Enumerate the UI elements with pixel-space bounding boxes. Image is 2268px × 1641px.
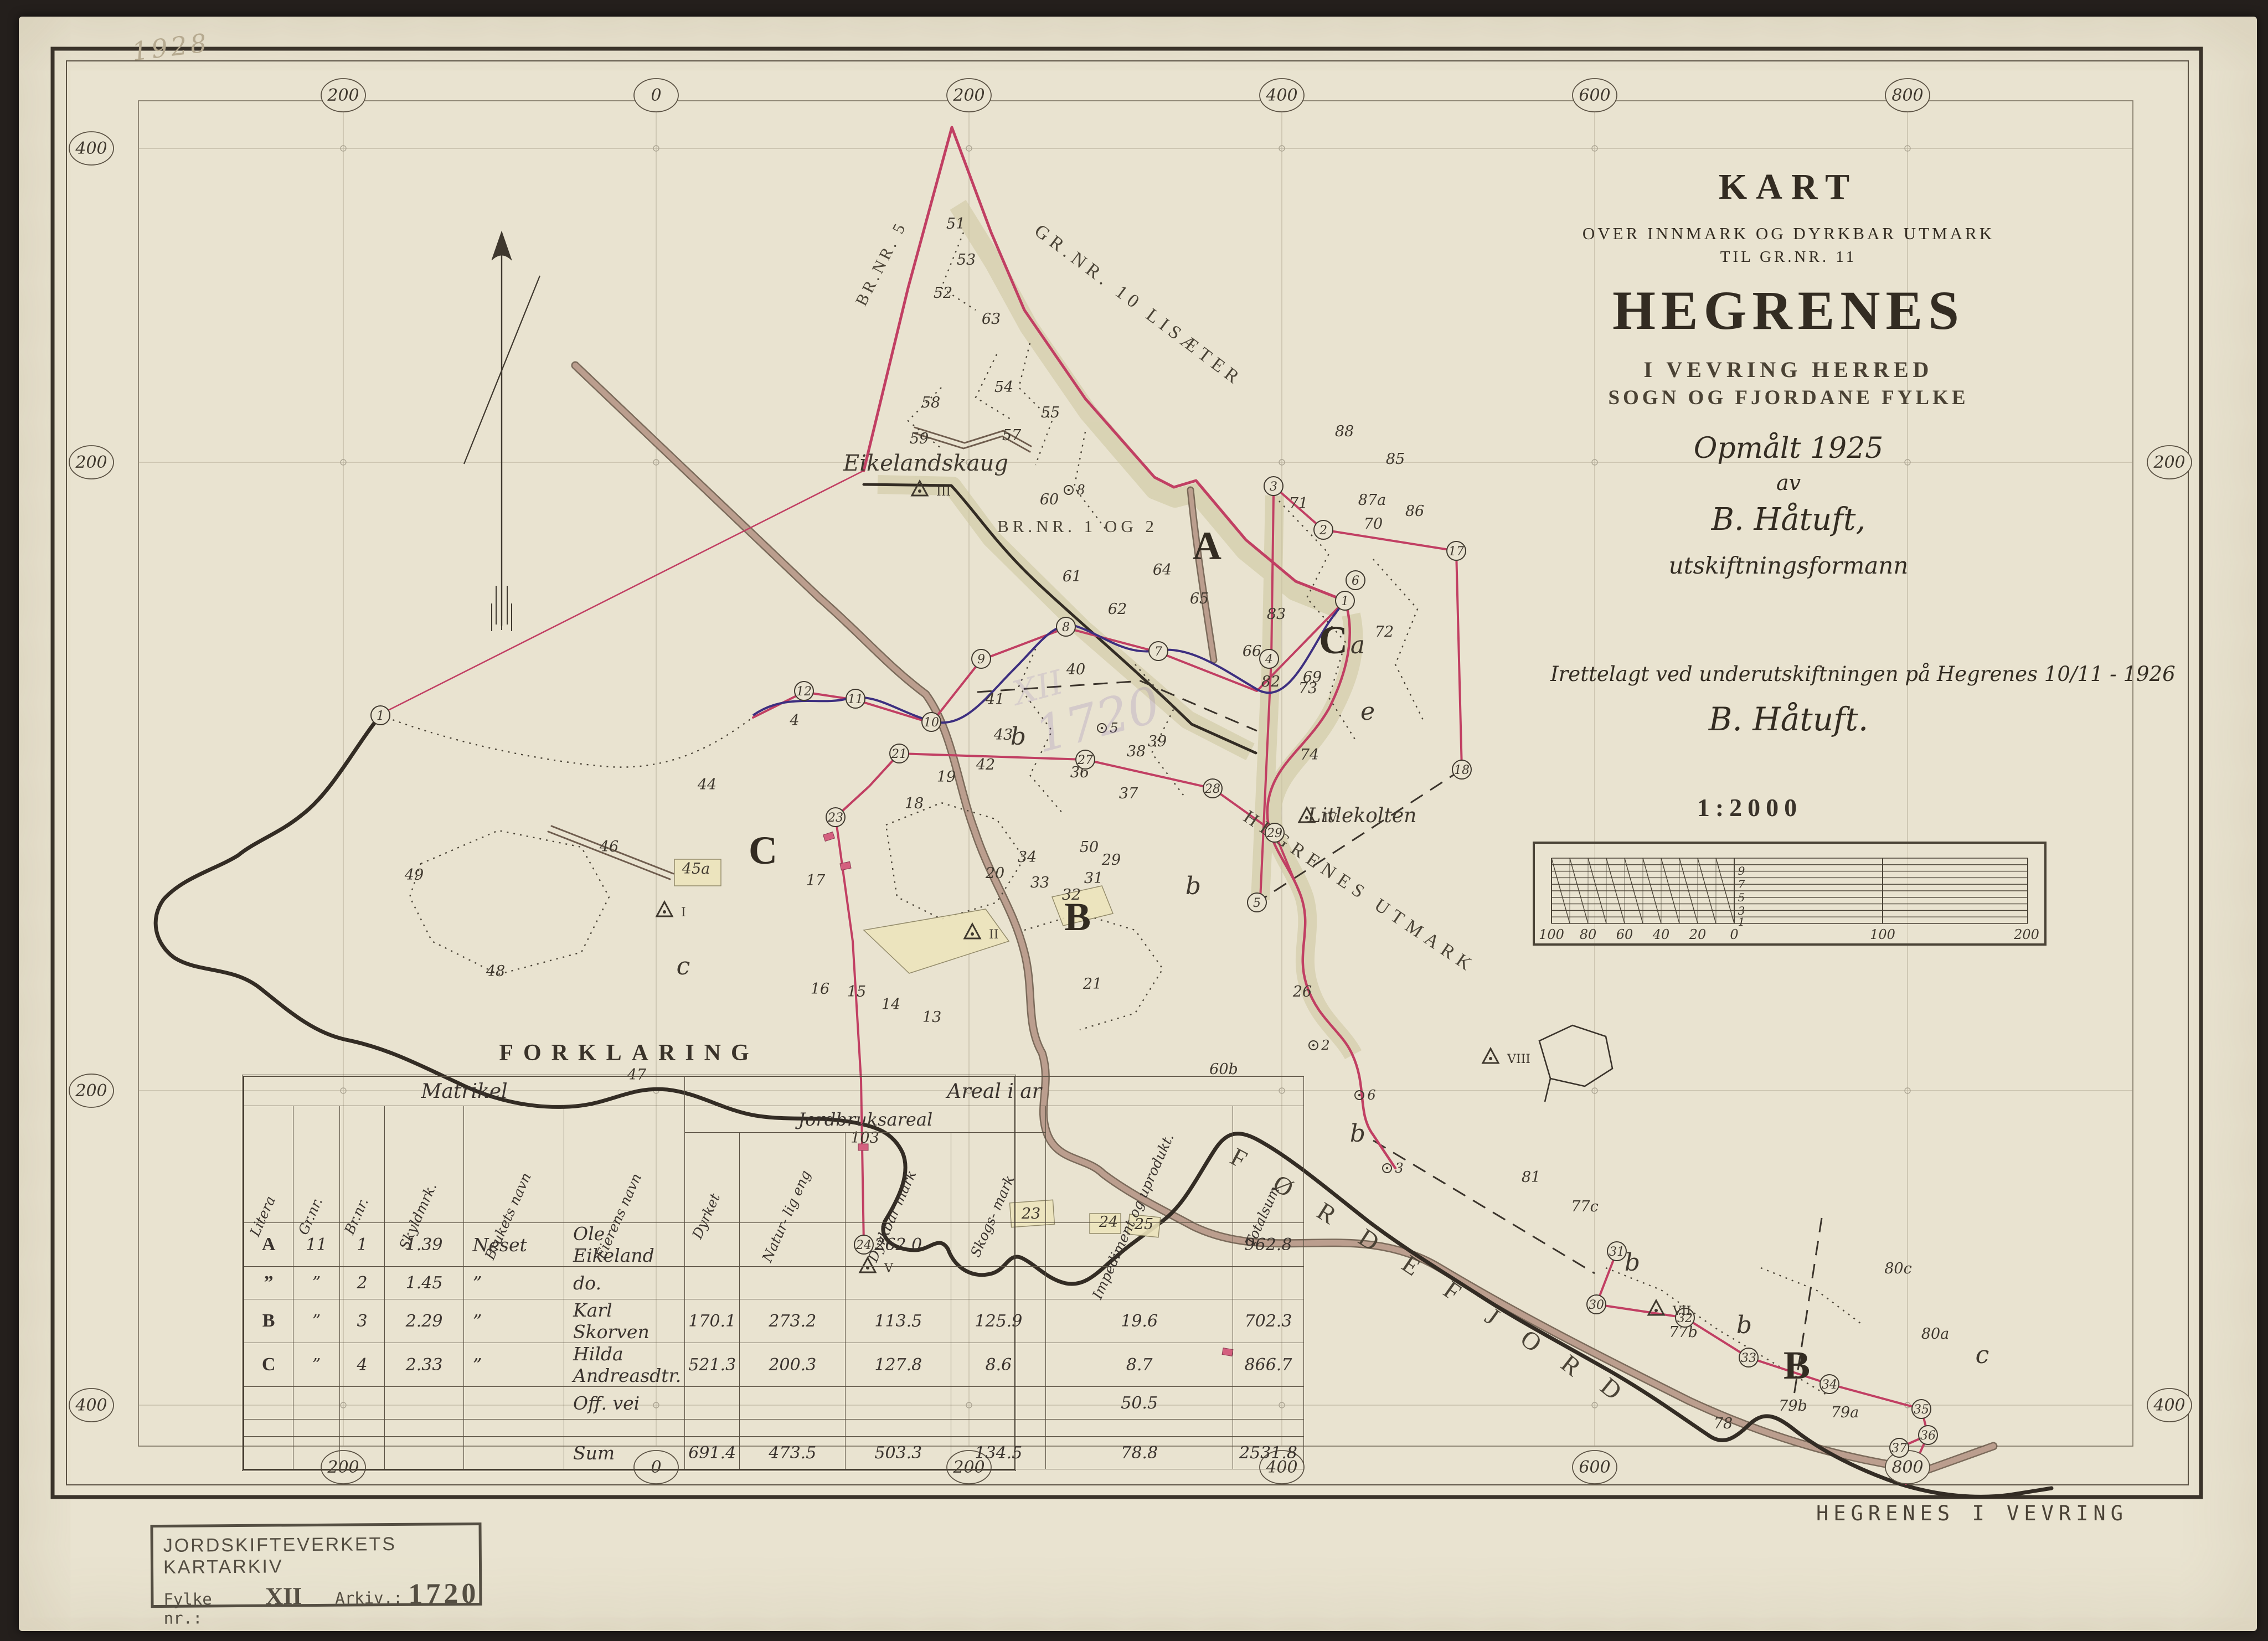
triangulation-numeral: III (936, 485, 951, 499)
subdivision-letter: b (1185, 872, 1201, 900)
parcel-number: 53 (957, 251, 976, 269)
fk-cell-78-8: 78.8 (1046, 1437, 1233, 1469)
fk-cell (685, 1267, 740, 1299)
fk-cell (740, 1387, 846, 1420)
boundary-point-number: 6 (1352, 574, 1359, 588)
title-kart: KART (1550, 166, 2027, 208)
boundary-point: 34 (1820, 1375, 1839, 1394)
parcel-number: 80c (1884, 1260, 1911, 1277)
triangulation-numeral: IV (1323, 812, 1338, 825)
fk-cell (244, 1387, 293, 1420)
parcel-number: 49 (404, 866, 424, 884)
boundary-point: 36 (1919, 1426, 1937, 1444)
subdivision-letter: c (677, 952, 690, 981)
grid-tick-value: 200 (75, 1081, 107, 1101)
boundary-point-number: 18 (1454, 763, 1470, 777)
point-mark-number: 6 (1367, 1087, 1375, 1103)
parcel-number: 71 (1289, 495, 1308, 512)
fk-cell-sum: Sum (564, 1437, 685, 1469)
boundary-point: 30 (1587, 1295, 1606, 1314)
fk-cell (951, 1223, 1046, 1267)
surveyor-title: utskiftningsformann (1550, 552, 2027, 579)
parcel-number: 85 (1386, 451, 1405, 468)
fk-cell-19-6: 19.6 (1046, 1299, 1233, 1343)
triangulation-numeral: II (989, 928, 998, 942)
fk-cell-brukets-navn: Brukets navn (463, 1106, 564, 1223)
fk-cell-113-5: 113.5 (846, 1299, 951, 1343)
fk-cell-503-3: 503.3 (846, 1437, 951, 1469)
parcel-number: 29 (1101, 852, 1121, 869)
fk-cell (385, 1420, 463, 1437)
parcel-number: 42 (976, 756, 995, 773)
boundary-point: 31 (1607, 1242, 1626, 1261)
parcel-number: 37 (1119, 785, 1138, 802)
parcel-number: 58 (921, 394, 940, 411)
boundary-point-number: 30 (1589, 1298, 1604, 1312)
stamp-line1: JORDSKIFTEVERKETS KARTARKIV (163, 1533, 480, 1578)
map-label: BR.NR. 1 OG 2 (997, 517, 1158, 536)
parcel-number: 55 (1041, 404, 1060, 421)
parcel-number: 17 (806, 872, 826, 889)
fk-cell (1046, 1267, 1233, 1299)
parcel-number: 63 (982, 311, 1001, 328)
fk-cell (1233, 1387, 1303, 1420)
scale-tick-label: 20 (1689, 927, 1707, 942)
boundary-point: 5 (1248, 893, 1266, 912)
parcel-number: 83 (1267, 606, 1286, 623)
boundary-point-number: 9 (977, 653, 985, 667)
parcel-number: 82 (1261, 673, 1280, 690)
fk-cell (339, 1420, 385, 1437)
subdivision-letter: b (1736, 1311, 1752, 1339)
fk-cell (951, 1420, 1046, 1437)
boundary-point: 33 (1739, 1348, 1758, 1367)
fk-cell-1-45: 1.45 (385, 1267, 463, 1299)
fk-cell--: ” (244, 1267, 293, 1299)
parcel-number: 14 (882, 996, 900, 1013)
fk-cell (564, 1420, 685, 1437)
fk-cell-hilda-andreasdtr-: Hilda Andreasdtr. (564, 1343, 685, 1387)
grid-tick-label: 200 (69, 1074, 114, 1107)
grid-tick-value: 800 (1891, 1458, 1923, 1477)
fk-cell-3: 3 (339, 1299, 385, 1343)
point-mark: 6 (1355, 1087, 1376, 1103)
parcel-number: 21 (1083, 976, 1102, 993)
boundary-point-number: 34 (1822, 1378, 1837, 1392)
boundary-point-number: 31 (1609, 1245, 1625, 1259)
boundary-point-number: 28 (1204, 782, 1220, 796)
fk-cell-170-1: 170.1 (685, 1299, 740, 1343)
boundary-point-number: 4 (1265, 653, 1273, 667)
fk-cell-impediment-og-uprodukt-: Impediment og uprodukt. (1046, 1106, 1233, 1223)
region-letter: C (749, 828, 777, 873)
fk-cell--: ” (463, 1343, 564, 1387)
boundary-point: 1 (1336, 591, 1354, 610)
fk-cell-262-0: 262.0 (846, 1223, 951, 1267)
subdivision-letter: a (1351, 631, 1365, 659)
fk-cell-2-33: 2.33 (385, 1343, 463, 1387)
parcel-number: 19 (937, 768, 956, 786)
grid-tick-value: 200 (75, 453, 107, 472)
title-block: KART OVER INNMARK OG DYRKBAR UTMARK TIL … (1550, 166, 2027, 738)
fk-cell-200-3: 200.3 (740, 1343, 846, 1387)
boundary-point-number: 5 (1253, 896, 1261, 910)
grid-tick-value: 200 (327, 86, 359, 105)
parcel-number: 77c (1571, 1198, 1598, 1215)
boundary-point: 18 (1452, 760, 1471, 779)
fk-cell-521-3: 521.3 (685, 1343, 740, 1387)
parcel-number: 59 (910, 430, 929, 447)
scale-side-label: 5 (1738, 891, 1745, 904)
point-mark-number: 3 (1395, 1160, 1403, 1176)
parcel-number: 31 (1084, 870, 1103, 887)
scale-tick-label: 40 (1652, 927, 1670, 942)
boundary-point: 8 (1056, 617, 1075, 636)
grid-tick-label: 600 (1573, 1451, 1617, 1484)
boundary-point-number: 27 (1077, 754, 1093, 767)
fk-cell-karl-skorven: Karl Skorven (564, 1299, 685, 1343)
grid-tick-value: 400 (75, 139, 107, 158)
fk-cell--: ” (463, 1267, 564, 1299)
fk-cell (463, 1387, 564, 1420)
parcel-number: 38 (1127, 743, 1146, 760)
boundary-point-number: 12 (796, 685, 812, 699)
fk-cell-c: C (244, 1343, 293, 1387)
scale-side-label: 9 (1738, 864, 1745, 878)
parcel-number: 52 (934, 285, 952, 302)
boundary-point: 1 (371, 706, 390, 725)
boundary-point: 3 (1264, 477, 1283, 496)
boundary-point-number: 8 (1062, 621, 1070, 634)
fk-cell (293, 1437, 339, 1469)
boundary-point-number: 7 (1154, 645, 1162, 659)
forklaring-table: MatrikelAreal i arLiteraGr.nr.Br.nr.Skyl… (244, 1076, 1014, 1469)
place-name: Eikelandskaug (843, 451, 1008, 476)
boundary-point: 28 (1203, 779, 1222, 798)
fk-cell-4: 4 (339, 1343, 385, 1387)
parcel-number: 86 (1405, 503, 1424, 520)
fk-cell-gr-nr-: Gr.nr. (293, 1106, 339, 1223)
grid-tick-label: 400 (2147, 1389, 2192, 1422)
scale-tick-label: 80 (1580, 927, 1597, 942)
triangulation-point: I (657, 902, 686, 920)
grid-tick-value: 600 (1579, 86, 1610, 105)
fk-cell-dyrket: Dyrket (685, 1133, 740, 1223)
fk-cell (740, 1267, 846, 1299)
parcel-number: 74 (1300, 746, 1319, 763)
boxed-parcel-label: 45a (682, 860, 710, 878)
boundary-point: 35 (1912, 1400, 1931, 1418)
fk-cell (293, 1420, 339, 1437)
fk-cell-br-nr-: Br.nr. (339, 1106, 385, 1223)
parcel-number: 4 (789, 712, 799, 729)
scale-tick-label: 100 (1870, 927, 1895, 942)
scale-side-label: 7 (1738, 878, 1745, 891)
title-line3: I VEVRING HERRED (1550, 357, 2027, 383)
boundary-point: 37 (1890, 1438, 1909, 1457)
fk-cell (951, 1267, 1046, 1299)
region-letter: C (1319, 618, 1348, 662)
point-mark-number: 2 (1321, 1038, 1329, 1053)
title-line1: OVER INNMARK OG DYRKBAR UTMARK (1550, 224, 2027, 244)
fk-cell-2: 2 (339, 1267, 385, 1299)
title-av: av (1550, 471, 2027, 495)
fk-cell-691-4: 691.4 (685, 1437, 740, 1469)
fk-cell-jordbruksareal: Jordbruksareal (685, 1106, 1046, 1133)
parcel-number: 32 (1062, 886, 1081, 904)
parcel-number: 61 (1063, 568, 1081, 585)
fk-cell-matrikel: Matrikel (244, 1077, 685, 1106)
boundary-point: 11 (846, 689, 865, 708)
grid-tick-label: 0 (634, 79, 678, 112)
boundary-point-number: 23 (827, 811, 843, 825)
boundary-point-number: 11 (848, 693, 863, 706)
fjord-letter: R (1312, 1196, 1342, 1230)
triangulation-numeral: I (681, 906, 686, 920)
fk-cell (339, 1387, 385, 1420)
boundary-point: 29 (1265, 823, 1284, 842)
point-mark-number: 8 (1076, 482, 1085, 498)
fk-cell-ole-eikeland: Ole Eikeland (564, 1223, 685, 1267)
fk-cell-litera: Litera (244, 1106, 293, 1223)
stamp-fylke-value: XII (265, 1582, 302, 1610)
fk-cell (463, 1420, 564, 1437)
parcel-number: 16 (811, 981, 829, 998)
grid-tick-value: 400 (2153, 1396, 2185, 1415)
grid-tick-label: 800 (1885, 1451, 1930, 1484)
subdivision-letter: b (1625, 1248, 1640, 1277)
parcel-number: 60 (1040, 491, 1059, 508)
grid-tick-label: 800 (1885, 79, 1930, 112)
parcel-number: 64 (1153, 561, 1172, 579)
fk-cell (685, 1387, 740, 1420)
grid-tick-label: 200 (69, 446, 114, 479)
grid-tick-label: 400 (1260, 79, 1304, 112)
parcel-number: 66 (1243, 643, 1261, 660)
fk-cell-b: B (244, 1299, 293, 1343)
fk-cell (293, 1387, 339, 1420)
parcel-number: 79a (1831, 1404, 1859, 1421)
grid-tick-value: 200 (2153, 453, 2185, 472)
parcel-number: 43 (993, 726, 1013, 744)
fk-cell-totalsum: Totalsum (1233, 1106, 1303, 1223)
parcel-number: 73 (1298, 680, 1317, 697)
scanned-map-sheet: 2000200400600800200020040060080040020020… (0, 0, 2268, 1641)
parcel-number: 78 (1714, 1415, 1733, 1432)
fk-cell (1233, 1420, 1303, 1437)
boundary-point: 21 (890, 744, 909, 763)
fk-cell-50-5: 50.5 (1046, 1387, 1233, 1420)
parcel-number: 20 (985, 865, 1004, 882)
grid-tick-value: 600 (1579, 1458, 1610, 1477)
parcel-number: 62 (1108, 601, 1127, 618)
grid-tick-value: 400 (1265, 86, 1297, 105)
fk-cell (244, 1437, 293, 1469)
boundary-point-number: 1 (377, 709, 384, 723)
parcel-number: 41 (985, 691, 1004, 708)
fk-cell--: ” (463, 1299, 564, 1343)
boundary-point: 6 (1346, 571, 1365, 590)
sheet-caption: HEGRENES I VEVRING (1816, 1501, 2128, 1525)
boundary-point: 10 (922, 713, 941, 731)
fk-cell-2531-8: 2531.8 (1233, 1437, 1303, 1469)
parcel-number: 65 (1190, 590, 1209, 607)
fk-cell-skyldmrk-: Skyldmrk. (385, 1106, 463, 1223)
fjord-letter: F (1439, 1275, 1466, 1306)
fk-cell (685, 1420, 740, 1437)
parcel-number: 48 (486, 963, 505, 980)
forklaring-title: FORKLARING (244, 1040, 1014, 1066)
boundary-point-number: 37 (1891, 1442, 1907, 1456)
subdivision-letter: b (1350, 1119, 1365, 1148)
grid-tick-value: 0 (651, 86, 661, 105)
parcel-number: 51 (946, 215, 965, 233)
subdivision-letter: e (1360, 698, 1375, 726)
scale-tick-label: 200 (2013, 927, 2039, 942)
fk-cell (1046, 1223, 1233, 1267)
parcel-number: 54 (994, 379, 1013, 396)
title-name: HEGRENES (1550, 278, 2027, 342)
fk-cell (846, 1267, 951, 1299)
fk-cell-do-: do. (564, 1267, 685, 1299)
boundary-point: 4 (1260, 649, 1279, 668)
grid-tick-label: 200 (2147, 446, 2192, 479)
fk-cell-134-5: 134.5 (951, 1437, 1046, 1469)
parcel-number: 60b (1209, 1061, 1238, 1078)
fk-cell-702-3: 702.3 (1233, 1299, 1303, 1343)
scale-tick-label: 0 (1730, 927, 1738, 942)
fk-cell (1233, 1267, 1303, 1299)
parcel-number: 50 (1080, 839, 1099, 856)
boundary-point: 23 (826, 808, 845, 827)
fk-cell-273-2: 273.2 (740, 1299, 846, 1343)
fk-cell-natur-lig-eng: Natur- lig eng (740, 1133, 846, 1223)
grid-tick-value: 800 (1891, 86, 1923, 105)
parcel-number: 72 (1375, 623, 1394, 641)
grid-tick-value: 200 (952, 86, 984, 105)
fk-cell--: ” (293, 1267, 339, 1299)
parcel-number: 79b (1779, 1397, 1807, 1415)
parcel-number: 26 (1292, 983, 1312, 1000)
fk-cell (1046, 1420, 1233, 1437)
parcel-number: 15 (847, 983, 866, 1000)
fk-cell-127-8: 127.8 (846, 1343, 951, 1387)
fk-cell-866-7: 866.7 (1233, 1343, 1303, 1387)
fk-cell-2-29: 2.29 (385, 1299, 463, 1343)
grid-tick-label: 200 (947, 79, 991, 112)
boundary-point-number: 35 (1914, 1403, 1929, 1417)
scale-bar (1534, 843, 2045, 945)
stamp-arkiv-label: Arkiv.: (335, 1588, 403, 1608)
triangulation-numeral: VII (1672, 1304, 1691, 1318)
parcel-number: 88 (1335, 423, 1354, 440)
fk-cell-off-vei: Off. vei (564, 1387, 685, 1420)
boundary-point: 17 (1447, 541, 1466, 560)
scale-side-label: 1 (1738, 915, 1745, 928)
map-label: BR.NR. 5 (852, 218, 910, 309)
fk-cell-473-5: 473.5 (740, 1437, 846, 1469)
fk-cell (740, 1420, 846, 1437)
fk-cell-125-9: 125.9 (951, 1299, 1046, 1343)
fk-cell (385, 1437, 463, 1469)
parcel-number: 40 (1066, 661, 1085, 678)
title-note: Irettelagt ved underutskiftningen på Heg… (1550, 662, 2027, 686)
fk-cell-neset: Neset (463, 1223, 564, 1267)
boundary-point-number: 1 (1341, 595, 1349, 608)
fk-cell (951, 1387, 1046, 1420)
parcel-number: 87a (1358, 492, 1386, 509)
scale-tick-label: 60 (1616, 927, 1633, 942)
grid-tick-label: 400 (69, 132, 114, 165)
fk-cell (385, 1387, 463, 1420)
parcel-number: 80a (1921, 1325, 1949, 1343)
fk-cell-962-8: 962.8 (1233, 1223, 1303, 1267)
subdivision-letter: c (1976, 1341, 1989, 1369)
parcel-number: 44 (697, 776, 717, 793)
title-surveyed: Opmålt 1925 (1550, 432, 2027, 465)
boundary-point: 12 (795, 682, 813, 700)
grid-tick-label: 200 (321, 79, 365, 112)
parcel-number: 70 (1364, 515, 1383, 533)
triangulation-point: VIII (1483, 1049, 1530, 1066)
title-line4: SOGN OG FJORDANE FYLKE (1550, 386, 2027, 410)
fk-cell-dyrkbar-mark: Dyrkbar mark (846, 1133, 951, 1223)
north-arrow-icon (464, 231, 540, 631)
fk-cell (463, 1437, 564, 1469)
fk-cell (740, 1223, 846, 1267)
boundary-point: 7 (1149, 642, 1168, 660)
boundary-point-number: 33 (1741, 1351, 1756, 1365)
fk-cell-8-7: 8.7 (1046, 1343, 1233, 1387)
parcel-number: 46 (599, 838, 618, 855)
fk-cell-8-6: 8.6 (951, 1343, 1046, 1387)
fk-cell--: ” (293, 1343, 339, 1387)
parcel-number: 81 (1522, 1169, 1540, 1186)
parcel-number: 13 (922, 1009, 941, 1026)
archive-stamp: JORDSKIFTEVERKETS KARTARKIV Fylke nr.: X… (150, 1523, 482, 1608)
fk-cell (339, 1437, 385, 1469)
grid-tick-value: 400 (75, 1396, 107, 1415)
fjord-letter: J (1480, 1302, 1504, 1331)
grid-tick-label: 600 (1573, 79, 1617, 112)
second-signature: B. Håtuft. (1550, 700, 2027, 738)
point-mark: 2 (1309, 1038, 1330, 1053)
stamp-arkiv-value: 1720 (408, 1577, 479, 1611)
boundary-point-number: 2 (1319, 524, 1327, 538)
boundary-point-number: 3 (1270, 480, 1277, 494)
boundary-point-number: 17 (1449, 545, 1464, 559)
triangulation-numeral: VIII (1507, 1052, 1530, 1066)
parcel-number: 33 (1030, 874, 1049, 891)
boundary-point: 2 (1314, 520, 1333, 539)
parcel-number: 18 (905, 795, 924, 812)
region-letter: A (1193, 524, 1221, 568)
fk-cell (846, 1420, 951, 1437)
fk-cell (846, 1387, 951, 1420)
small-enclosure (1539, 1025, 1612, 1102)
boundary-point: 9 (972, 649, 991, 668)
title-line2: TIL GR.NR. 11 (1550, 248, 2027, 266)
scale-tick-label: 100 (1539, 927, 1564, 942)
fk-cell--: ” (293, 1299, 339, 1343)
fk-cell-eierens-navn: Eierens navn (564, 1106, 685, 1223)
boundary-point-number: 36 (1920, 1429, 1936, 1443)
stamp-fylke-label: Fylke nr.: (163, 1590, 260, 1628)
boundary-point-number: 21 (891, 747, 907, 761)
scale-ratio-label: 1:2000 (1639, 793, 1860, 822)
fk-cell (244, 1420, 293, 1437)
boundary-point-number: 10 (924, 716, 939, 730)
